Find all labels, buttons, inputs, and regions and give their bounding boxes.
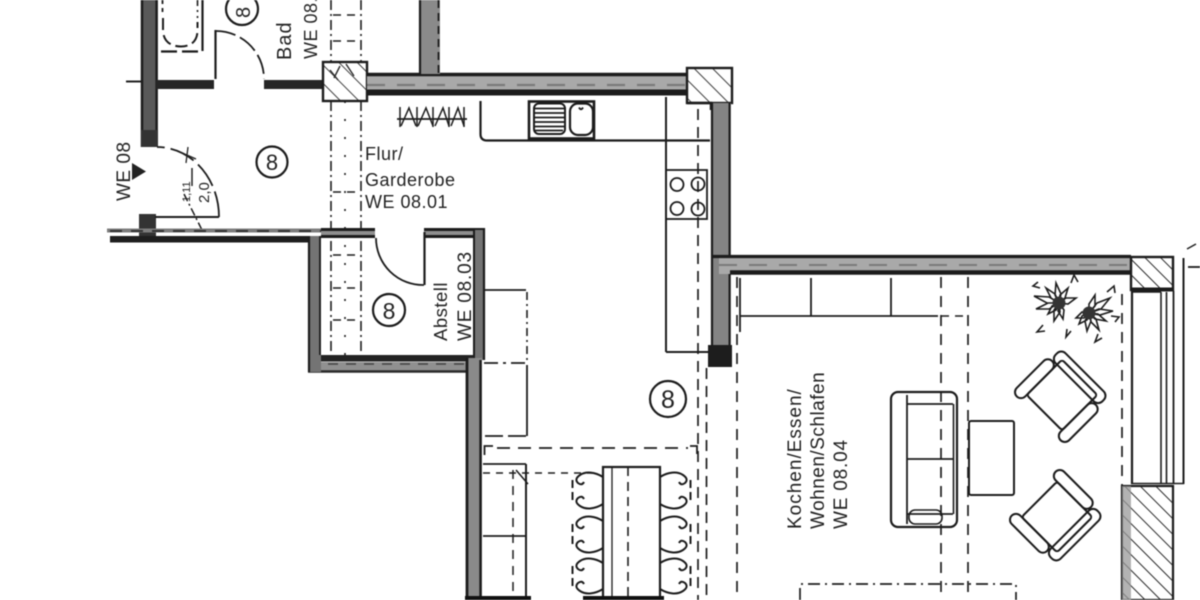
svg-text:Garderobe: Garderobe	[365, 170, 456, 190]
svg-text:WE 08.: WE 08.	[301, 0, 321, 59]
svg-text:WE 08.03: WE 08.03	[455, 251, 476, 341]
svg-text:8: 8	[661, 386, 675, 414]
svg-text:WE 08.01: WE 08.01	[365, 192, 448, 212]
svg-text:Wohnen/Schlafen: Wohnen/Schlafen	[808, 372, 829, 529]
svg-text:1,11: 1,11	[181, 181, 193, 202]
svg-text:Flur/: Flur/	[365, 144, 404, 164]
svg-text:8: 8	[266, 150, 278, 175]
svg-text:2,0: 2,0	[196, 182, 213, 203]
svg-text:Bad: Bad	[274, 21, 296, 60]
svg-text:Abstell: Abstell	[430, 282, 451, 341]
svg-text:8: 8	[383, 298, 396, 324]
svg-text:8: 8	[233, 7, 255, 18]
svg-text:WE 08: WE 08	[114, 141, 135, 201]
svg-text:WE 08.04: WE 08.04	[831, 439, 852, 529]
svg-text:Kochen/Essen/: Kochen/Essen/	[785, 388, 806, 529]
